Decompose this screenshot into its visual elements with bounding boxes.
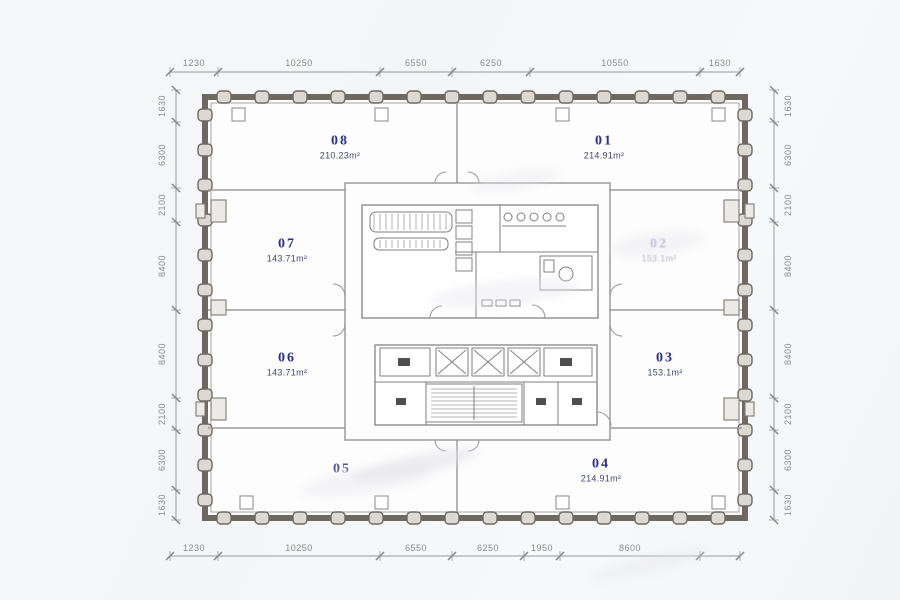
dim-right-1: 1630 (782, 84, 794, 128)
dim-top-6: 1630 (698, 57, 742, 69)
unit-label-07: 07 143.71m² (267, 236, 307, 263)
dim-top-4: 6250 (469, 57, 513, 69)
dim-left-4: 8400 (156, 244, 168, 288)
dim-right-4: 8400 (782, 244, 794, 288)
dim-top-1: 1230 (172, 57, 216, 69)
unit-area-06: 143.71m² (267, 367, 307, 377)
dim-left-5: 8400 (156, 332, 168, 376)
unit-number-06: 06 (267, 350, 307, 366)
dim-bottom-5: 1950 (520, 542, 564, 554)
dim-left-2: 6300 (156, 133, 168, 177)
unit-number-04: 04 (581, 456, 621, 472)
dim-bottom-2: 10250 (277, 542, 321, 554)
unit-area-07: 143.71m² (267, 253, 307, 263)
unit-area-03: 153.1m² (647, 367, 682, 377)
dim-right-5: 8400 (782, 332, 794, 376)
dim-right-7: 6300 (782, 438, 794, 482)
dim-bottom-4: 6250 (466, 542, 510, 554)
dim-left-1: 1630 (156, 84, 168, 128)
unit-label-08: 08 210.23m² (320, 133, 360, 160)
unit-area-01: 214.91m² (584, 150, 624, 160)
unit-label-06: 06 143.71m² (267, 350, 307, 377)
unit-number-08: 08 (320, 133, 360, 149)
floor-plan-page: 1230 10250 6550 6250 10550 1630 1230 102… (0, 0, 900, 600)
dim-left-7: 6300 (156, 438, 168, 482)
dim-top-3: 6550 (394, 57, 438, 69)
dim-left-6: 2100 (156, 392, 168, 436)
upper-core (362, 205, 598, 318)
dim-bottom-3: 6550 (394, 542, 438, 554)
dim-top-2: 10250 (277, 57, 321, 69)
unit-label-01: 01 214.91m² (584, 133, 624, 160)
unit-number-07: 07 (267, 236, 307, 252)
dim-bottom-6: 8600 (608, 542, 652, 554)
unit-area-08: 210.23m² (320, 150, 360, 160)
dim-left-8: 1630 (156, 483, 168, 527)
unit-label-03: 03 153.1m² (647, 350, 682, 377)
unit-label-04: 04 214.91m² (581, 456, 621, 483)
unit-number-05: 05 (333, 461, 351, 477)
unit-label-02: 02 153.1m² (641, 236, 676, 263)
dim-right-3: 2100 (782, 183, 794, 227)
unit-label-05: 05 (333, 461, 351, 478)
dim-right-2: 6300 (782, 133, 794, 177)
floor-plan-drawing (0, 0, 900, 600)
dim-left-3: 2100 (156, 183, 168, 227)
dim-right-8: 1630 (782, 483, 794, 527)
dim-right-6: 2100 (782, 392, 794, 436)
unit-area-04: 214.91m² (581, 473, 621, 483)
unit-area-02: 153.1m² (641, 253, 676, 263)
unit-number-02: 02 (641, 236, 676, 252)
dim-bottom-1: 1230 (172, 542, 216, 554)
unit-number-01: 01 (584, 133, 624, 149)
unit-number-03: 03 (647, 350, 682, 366)
dim-top-5: 10550 (593, 57, 637, 69)
